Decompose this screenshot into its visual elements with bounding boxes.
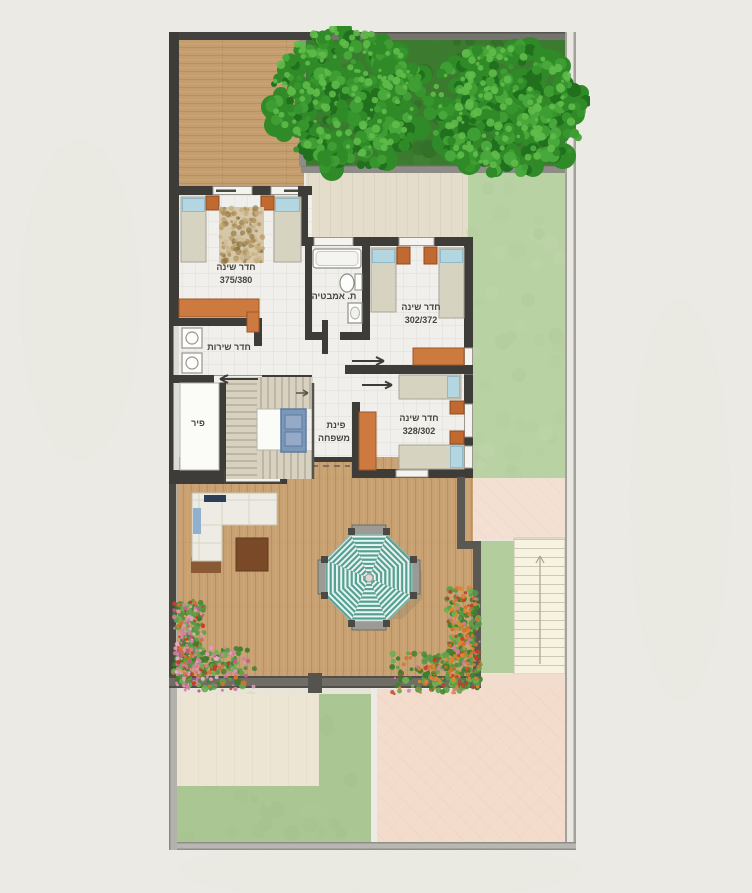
svg-text:375/380: 375/380 [220, 275, 253, 285]
svg-text:חדר שינה: חדר שינה [401, 302, 440, 312]
svg-text:פינת: פינת [327, 420, 346, 430]
svg-text:חדר שינה: חדר שינה [216, 262, 255, 272]
svg-text:חדר שינה: חדר שינה [399, 413, 438, 423]
svg-text:ת. אמבטיה: ת. אמבטיה [312, 291, 357, 301]
svg-text:משפחה: משפחה [318, 433, 350, 443]
svg-text:חדר שירות: חדר שירות [207, 342, 251, 352]
svg-text:302/372: 302/372 [405, 315, 438, 325]
svg-text:328/302: 328/302 [403, 426, 436, 436]
svg-text:פיר: פיר [191, 418, 205, 428]
